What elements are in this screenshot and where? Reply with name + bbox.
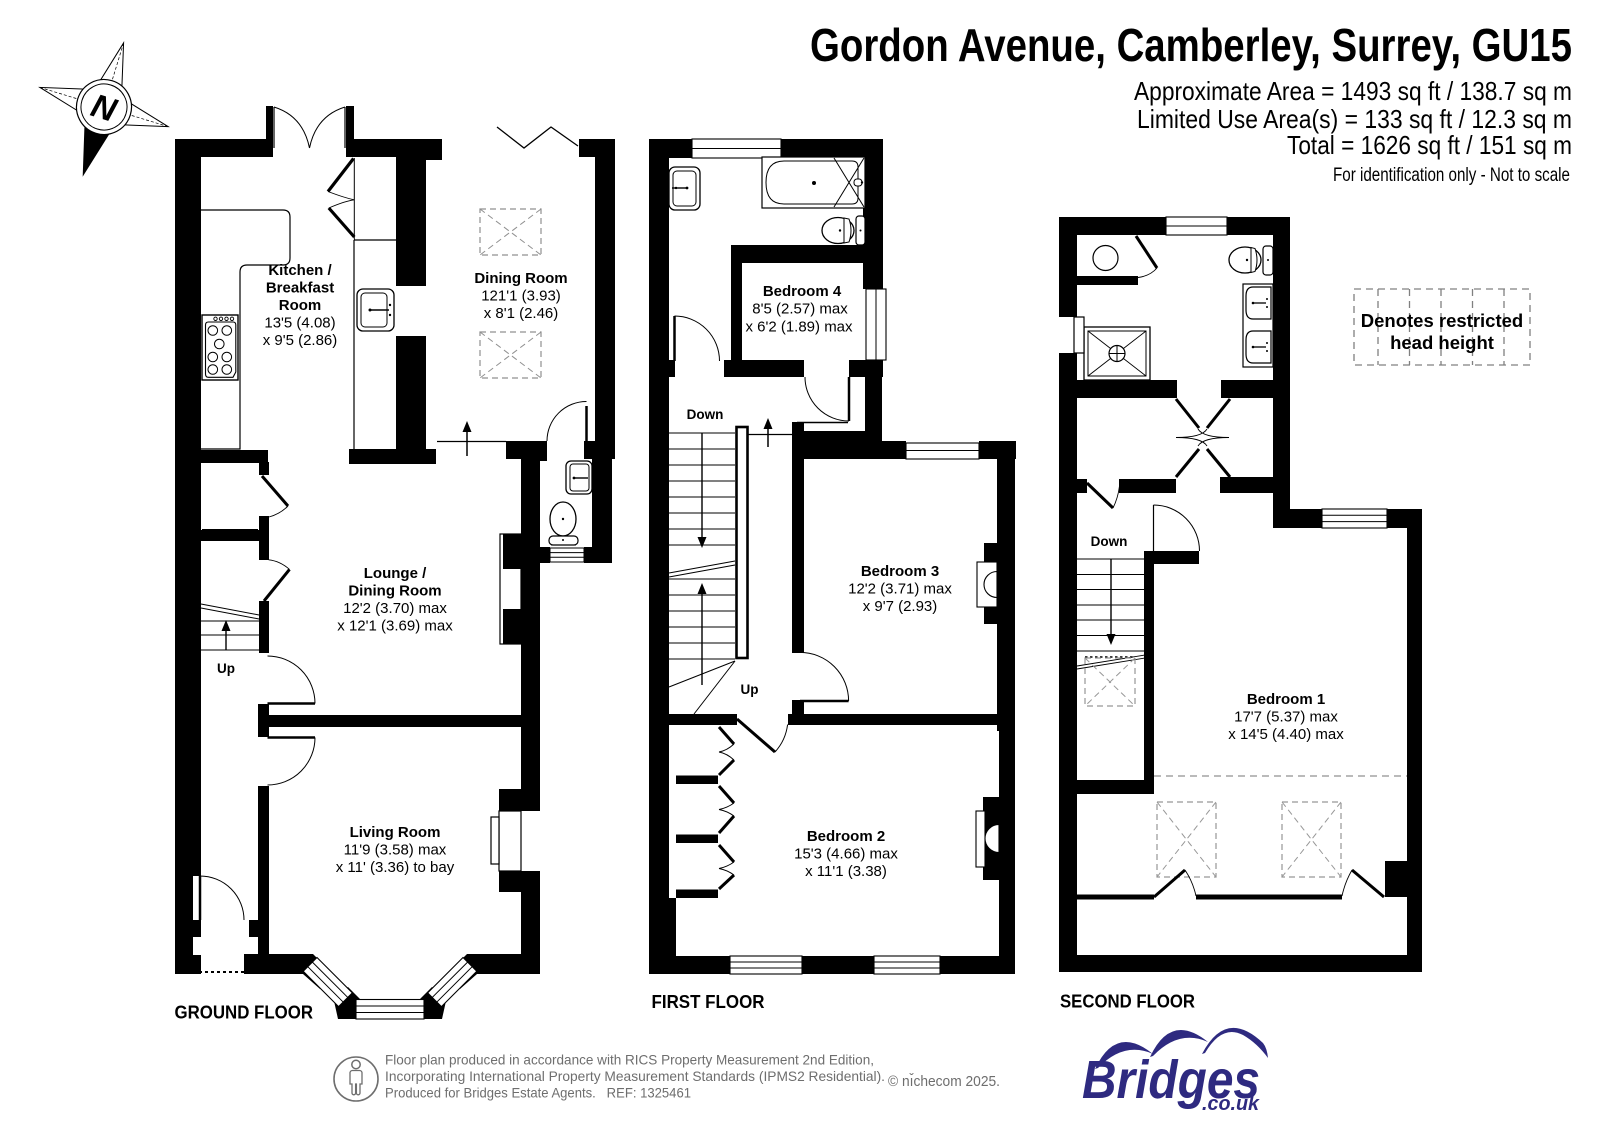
svg-text:Up: Up	[217, 661, 235, 676]
svg-text:Up: Up	[741, 682, 759, 697]
svg-text:17'7 (5.37) max: 17'7 (5.37) max	[1234, 709, 1338, 726]
svg-text:11'9 (3.58) max: 11'9 (3.58) max	[344, 842, 447, 859]
svg-text:SECOND FLOOR: SECOND FLOOR	[1060, 991, 1195, 1012]
svg-text:© nı̌checom 2025.: © nı̌checom 2025.	[888, 1073, 1000, 1090]
svg-text:Lounge /: Lounge /	[364, 565, 427, 582]
svg-text:Produced for Bridges Estate Ag: Produced for Bridges Estate Agents. REF:…	[385, 1086, 691, 1101]
svg-text:Floor plan produced in accorda: Floor plan produced in accordance with R…	[385, 1053, 874, 1068]
svg-text:head height: head height	[1390, 332, 1494, 353]
svg-text:Bedroom 3: Bedroom 3	[861, 563, 939, 580]
svg-text:x 9'5 (2.86): x 9'5 (2.86)	[263, 332, 338, 349]
svg-text:12'2 (3.71) max: 12'2 (3.71) max	[848, 581, 952, 598]
svg-text:Living Room: Living Room	[350, 824, 441, 841]
svg-text:Kitchen /: Kitchen /	[268, 262, 332, 279]
svg-text:Approximate Area = 1493 sq ft: Approximate Area = 1493 sq ft / 138.7 sq…	[1134, 76, 1572, 106]
svg-text:Incorporating International Pr: Incorporating International Property Mea…	[385, 1069, 885, 1084]
svg-text:x 9'7 (2.93): x 9'7 (2.93)	[863, 598, 938, 615]
svg-text:.co.uk: .co.uk	[1202, 1093, 1260, 1115]
svg-text:x 6'2 (1.89) max: x 6'2 (1.89) max	[745, 319, 853, 336]
svg-text:x 8'1 (2.46): x 8'1 (2.46)	[484, 305, 559, 322]
svg-text:15'3 (4.66) max: 15'3 (4.66) max	[794, 846, 898, 863]
svg-text:12'2 (3.70) max: 12'2 (3.70) max	[343, 600, 447, 617]
svg-text:Down: Down	[687, 407, 724, 422]
svg-text:Bedroom 2: Bedroom 2	[807, 828, 885, 845]
svg-text:GROUND FLOOR: GROUND FLOOR	[175, 1002, 314, 1023]
svg-text:Dining Room: Dining Room	[474, 270, 567, 287]
svg-text:x 14'5 (4.40) max: x 14'5 (4.40) max	[1228, 726, 1344, 743]
svg-text:Denotes restricted: Denotes restricted	[1361, 310, 1523, 331]
svg-text:Bedroom 1: Bedroom 1	[1247, 691, 1325, 708]
svg-text:Breakfast: Breakfast	[266, 280, 334, 297]
svg-text:Dining Room: Dining Room	[348, 583, 441, 600]
svg-text:Gordon Avenue, Camberley, Surr: Gordon Avenue, Camberley, Surrey, GU15	[810, 19, 1572, 71]
svg-text:For identification only - Not: For identification only - Not to scale	[1333, 164, 1570, 186]
svg-text:13'5 (4.08): 13'5 (4.08)	[264, 315, 335, 332]
svg-text:Total = 1626 sq ft / 151 sq m: Total = 1626 sq ft / 151 sq m	[1287, 130, 1572, 160]
svg-text:FIRST FLOOR: FIRST FLOOR	[652, 991, 765, 1012]
svg-text:Room: Room	[279, 297, 322, 314]
svg-text:x 11'1 (3.38): x 11'1 (3.38)	[805, 863, 887, 880]
svg-text:x 11' (3.36) to bay: x 11' (3.36) to bay	[336, 859, 455, 876]
svg-text:Bedroom 4: Bedroom 4	[763, 283, 842, 300]
svg-text:121'1 (3.93): 121'1 (3.93)	[481, 288, 561, 305]
svg-text:x 12'1 (3.69) max: x 12'1 (3.69) max	[337, 618, 453, 635]
svg-text:Down: Down	[1091, 534, 1128, 549]
svg-text:8'5 (2.57) max: 8'5 (2.57) max	[752, 301, 848, 318]
